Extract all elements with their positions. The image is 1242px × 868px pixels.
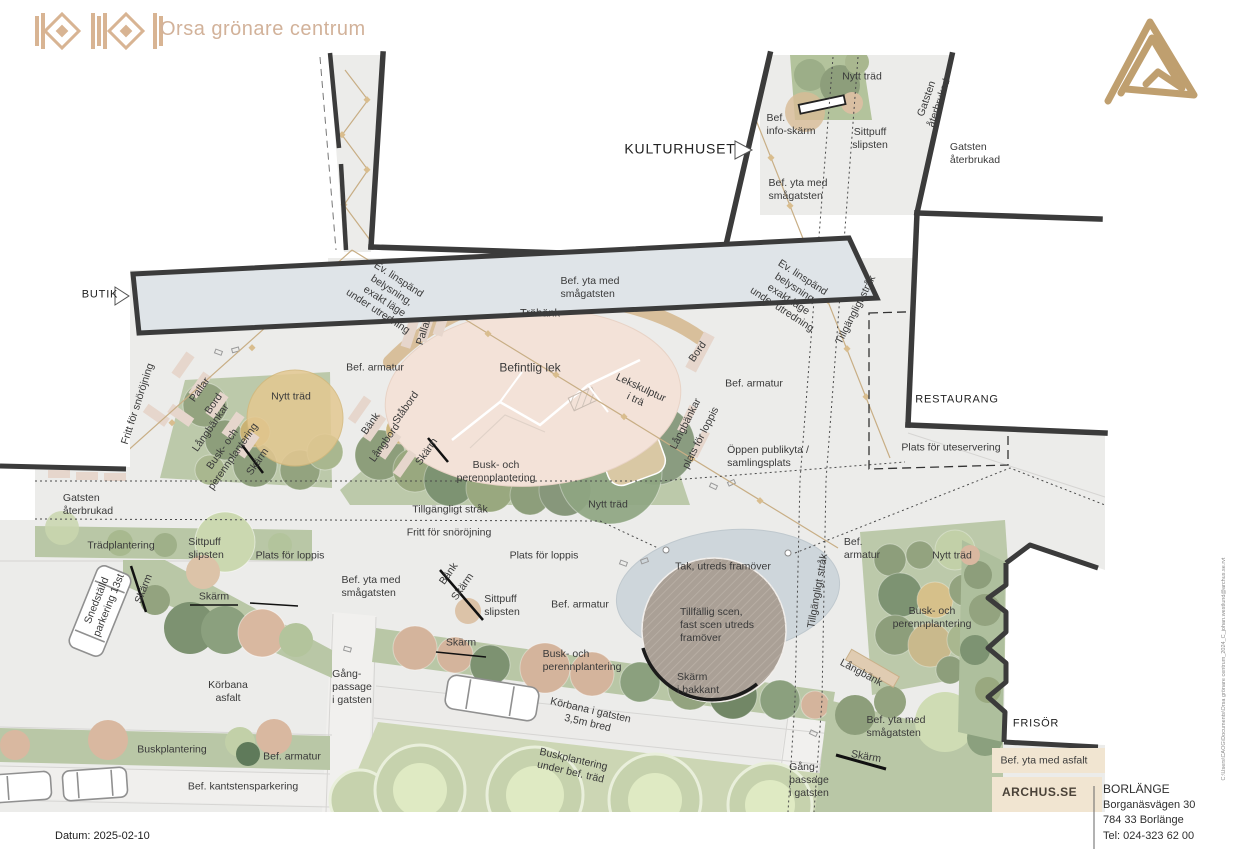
asphalt-area-box <box>992 748 1105 773</box>
site-plan-drawing <box>0 0 1242 868</box>
website-label: ARCHUS.SE <box>1002 785 1077 799</box>
office-city: BORLÄNGE <box>1103 781 1195 798</box>
building-kulturhuset <box>371 53 770 258</box>
page-title: Orsa grönare centrum <box>160 18 366 41</box>
office-phone: Tel: 024-323 62 00 <box>1103 829 1195 844</box>
building-frisor <box>1004 545 1105 745</box>
office-address: BORLÄNGE Borganäsvägen 30 784 33 Borläng… <box>1103 781 1195 844</box>
file-path-note: C:\Users\CAOG\Documents\Orsa grönare cen… <box>1221 539 1227 799</box>
parked-car-south-1 <box>62 767 128 801</box>
building-restaurang <box>908 213 1105 433</box>
date-stamp: Datum: 2025-02-10 <box>55 830 150 842</box>
seat-puff-west <box>186 555 220 589</box>
office-postal: 784 33 Borlänge <box>1103 813 1195 828</box>
parked-car-south-2 <box>0 771 52 803</box>
office-street: Borganäsvägen 30 <box>1103 798 1195 813</box>
plan-sheet: Orsa grönare centrum Nytt trädBef. info-… <box>0 0 1242 868</box>
new-tree-west <box>247 370 343 466</box>
